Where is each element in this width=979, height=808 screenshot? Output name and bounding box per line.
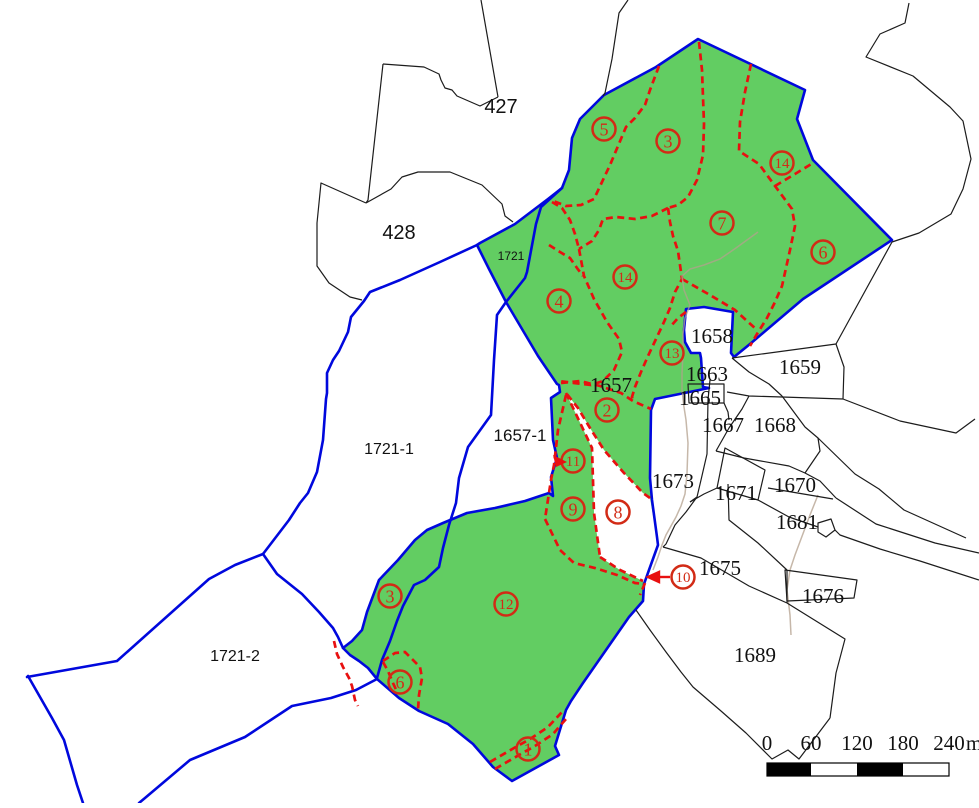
svg-text:1663: 1663 — [686, 362, 728, 386]
svg-text:1667: 1667 — [702, 413, 744, 437]
svg-text:1676: 1676 — [802, 584, 844, 608]
svg-text:14: 14 — [775, 156, 791, 172]
svg-text:1657: 1657 — [590, 373, 632, 397]
svg-text:1658: 1658 — [691, 324, 733, 348]
svg-text:1657-1: 1657-1 — [494, 426, 547, 445]
svg-text:1721-1: 1721-1 — [364, 441, 414, 458]
svg-text:0: 0 — [762, 731, 773, 755]
svg-text:1659: 1659 — [779, 355, 821, 379]
svg-text:1670: 1670 — [774, 473, 816, 497]
svg-text:9: 9 — [569, 500, 578, 520]
svg-text:13: 13 — [665, 346, 680, 362]
svg-text:m: m — [966, 731, 979, 755]
svg-text:428: 428 — [382, 222, 415, 244]
svg-text:1671: 1671 — [715, 481, 757, 505]
svg-text:14: 14 — [618, 270, 634, 286]
svg-text:1721-2: 1721-2 — [210, 648, 260, 665]
svg-text:1665: 1665 — [679, 386, 721, 410]
svg-text:4: 4 — [555, 292, 564, 312]
svg-text:1673: 1673 — [652, 469, 694, 493]
svg-text:1721: 1721 — [498, 249, 525, 263]
svg-text:10: 10 — [676, 570, 691, 586]
svg-text:3: 3 — [386, 587, 395, 607]
svg-text:3: 3 — [664, 132, 673, 152]
svg-text:1675: 1675 — [699, 556, 741, 580]
svg-text:1: 1 — [524, 740, 533, 760]
svg-text:1689: 1689 — [734, 643, 776, 667]
svg-text:120: 120 — [841, 731, 873, 755]
svg-text:1681: 1681 — [776, 510, 818, 534]
svg-text:7: 7 — [718, 214, 727, 234]
svg-text:180: 180 — [887, 731, 919, 755]
svg-text:11: 11 — [566, 454, 580, 470]
svg-text:240: 240 — [933, 731, 965, 755]
svg-text:6: 6 — [396, 673, 405, 693]
svg-text:12: 12 — [499, 597, 514, 613]
svg-text:5: 5 — [600, 120, 609, 140]
svg-text:2: 2 — [603, 401, 612, 421]
svg-text:6: 6 — [819, 243, 828, 263]
svg-text:427: 427 — [484, 96, 517, 118]
svg-text:8: 8 — [614, 503, 623, 523]
svg-text:1668: 1668 — [754, 413, 796, 437]
svg-text:60: 60 — [801, 731, 822, 755]
